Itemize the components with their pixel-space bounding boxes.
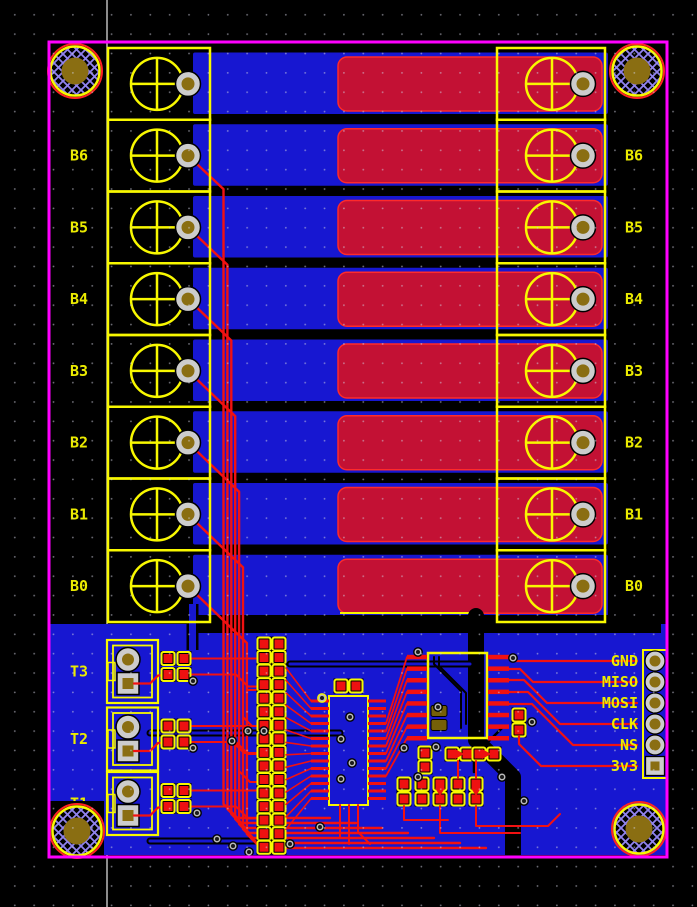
ic-pad bbox=[311, 760, 329, 763]
header-pad[interactable] bbox=[272, 704, 287, 719]
pad-copper bbox=[400, 780, 409, 789]
pad-copper bbox=[164, 654, 173, 663]
via-hole bbox=[350, 761, 354, 765]
header-pad[interactable] bbox=[272, 826, 287, 841]
pad-copper bbox=[472, 780, 481, 789]
hole-drill bbox=[626, 816, 653, 843]
pad-copper bbox=[275, 707, 284, 716]
pad-copper bbox=[180, 722, 189, 731]
resistor-pad[interactable] bbox=[161, 719, 176, 734]
pad-copper bbox=[164, 722, 173, 731]
pad-drill bbox=[123, 746, 134, 757]
pad-copper bbox=[275, 789, 284, 798]
chip-pad bbox=[488, 655, 509, 660]
capacitor-pad[interactable] bbox=[512, 708, 527, 723]
ic-pad bbox=[368, 782, 386, 785]
via-hole bbox=[320, 696, 324, 700]
channel-label-left-b6: B6 bbox=[70, 147, 88, 165]
spi-label-miso: MISO bbox=[602, 673, 638, 691]
chip-pad bbox=[488, 690, 509, 695]
header-pad[interactable] bbox=[272, 745, 287, 760]
mounting-hole-top-left[interactable] bbox=[48, 44, 102, 98]
ic-pad bbox=[368, 775, 386, 778]
via-hole bbox=[288, 842, 292, 846]
via[interactable] bbox=[434, 703, 442, 711]
header-pad[interactable] bbox=[272, 718, 287, 733]
chip-pad bbox=[407, 724, 427, 729]
pad-copper bbox=[260, 802, 269, 811]
pour-gap-strip bbox=[187, 615, 661, 633]
header-pad[interactable] bbox=[272, 786, 287, 801]
via[interactable] bbox=[213, 835, 221, 843]
ic-pad bbox=[311, 775, 329, 778]
chip-pad bbox=[407, 701, 427, 706]
chip-pad bbox=[407, 678, 427, 683]
pad-drill bbox=[577, 77, 590, 90]
pad-copper bbox=[180, 738, 189, 747]
resistor-pad[interactable] bbox=[177, 651, 192, 666]
via[interactable] bbox=[244, 727, 252, 735]
chip-pad bbox=[488, 678, 509, 683]
pad-drill bbox=[577, 221, 590, 234]
smd-pad[interactable] bbox=[415, 792, 430, 807]
via[interactable] bbox=[400, 744, 408, 752]
channel-label-left-b2: B2 bbox=[70, 434, 88, 452]
tented-pad bbox=[431, 720, 447, 731]
header-pad[interactable] bbox=[272, 731, 287, 746]
resistor-pad[interactable] bbox=[177, 799, 192, 814]
chip-pad bbox=[488, 666, 509, 671]
pin-drill bbox=[650, 719, 661, 730]
pad-copper bbox=[454, 780, 463, 789]
channel-label-right-b5: B5 bbox=[625, 218, 643, 236]
pad-copper bbox=[164, 670, 173, 679]
header-pad[interactable] bbox=[272, 691, 287, 706]
pad-drill bbox=[123, 678, 134, 689]
header-pad[interactable] bbox=[272, 799, 287, 814]
via[interactable] bbox=[286, 840, 294, 848]
bottom-trace-stub bbox=[189, 604, 196, 650]
header-pad[interactable] bbox=[272, 813, 287, 828]
pad-drill bbox=[577, 364, 590, 377]
pad-drill bbox=[577, 436, 590, 449]
pad-copper bbox=[260, 667, 269, 676]
pin-drill bbox=[650, 740, 661, 751]
ic-pad bbox=[311, 737, 329, 740]
ic-pad bbox=[368, 737, 386, 740]
smd-pad[interactable] bbox=[418, 760, 433, 775]
pad-copper bbox=[180, 670, 189, 679]
ic-pad bbox=[368, 745, 386, 748]
pad-copper bbox=[275, 694, 284, 703]
via-hole bbox=[402, 746, 406, 750]
spi-label-ns: NS bbox=[620, 736, 638, 754]
header-pad[interactable] bbox=[257, 691, 272, 706]
via[interactable] bbox=[337, 775, 345, 783]
resistor-pad[interactable] bbox=[161, 735, 176, 750]
via-hole bbox=[339, 737, 343, 741]
pad-copper bbox=[275, 829, 284, 838]
via-hole bbox=[339, 777, 343, 781]
pad-drill bbox=[182, 580, 195, 593]
via-hole bbox=[230, 739, 234, 743]
via-hole bbox=[348, 715, 352, 719]
channel-label-left-b5: B5 bbox=[70, 218, 88, 236]
via[interactable] bbox=[245, 848, 253, 856]
ic-pad bbox=[368, 715, 386, 718]
resistor-pad[interactable] bbox=[161, 667, 176, 682]
ic-pad bbox=[311, 707, 329, 710]
ic-pad bbox=[311, 790, 329, 793]
pad-copper bbox=[515, 726, 524, 735]
spi-label-mosi: MOSI bbox=[602, 694, 638, 712]
ic-pad bbox=[368, 797, 386, 800]
resistor-pad[interactable] bbox=[161, 799, 176, 814]
via[interactable] bbox=[414, 773, 422, 781]
smd-pad[interactable] bbox=[451, 792, 466, 807]
mounting-hole-bottom-left[interactable] bbox=[50, 804, 104, 858]
via[interactable] bbox=[520, 797, 528, 805]
pad-copper bbox=[180, 786, 189, 795]
pad-drill bbox=[182, 221, 195, 234]
mounting-hole-bottom-right[interactable] bbox=[612, 802, 666, 856]
pad-copper bbox=[275, 680, 284, 689]
ic-pad bbox=[368, 700, 386, 703]
header-pad[interactable] bbox=[257, 637, 272, 652]
via[interactable] bbox=[228, 737, 236, 745]
via-hole bbox=[522, 799, 526, 803]
via-hole bbox=[511, 656, 515, 660]
pad-copper bbox=[275, 816, 284, 825]
header-pad[interactable] bbox=[272, 677, 287, 692]
header-pad[interactable] bbox=[272, 650, 287, 665]
resistor-pad[interactable] bbox=[161, 783, 176, 798]
via-hole bbox=[247, 850, 251, 854]
via-hole bbox=[500, 775, 504, 779]
chip-pad bbox=[407, 736, 427, 741]
via-hole bbox=[416, 775, 420, 779]
channel-label-left-b3: B3 bbox=[70, 362, 88, 380]
pad-copper bbox=[275, 843, 284, 852]
via[interactable] bbox=[509, 654, 517, 662]
pad-drill bbox=[577, 293, 590, 306]
pad-copper bbox=[180, 802, 189, 811]
channel-label-right-b6: B6 bbox=[625, 147, 643, 165]
pad-copper bbox=[260, 694, 269, 703]
ic-pad bbox=[311, 752, 329, 755]
header-pad[interactable] bbox=[257, 840, 272, 855]
pad-drill bbox=[182, 293, 195, 306]
channel-label-right-b1: B1 bbox=[625, 505, 643, 523]
spi-label-clk: CLK bbox=[611, 715, 638, 733]
header-pad[interactable] bbox=[257, 813, 272, 828]
channel-label-right-b2: B2 bbox=[625, 434, 643, 452]
resistor-pad[interactable] bbox=[177, 719, 192, 734]
via-hole bbox=[434, 745, 438, 749]
hole-drill bbox=[62, 58, 89, 85]
via-hole bbox=[191, 679, 195, 683]
header-pad[interactable] bbox=[257, 704, 272, 719]
pad-drill bbox=[122, 786, 134, 798]
via[interactable] bbox=[189, 744, 197, 752]
pad-copper bbox=[337, 682, 346, 691]
via[interactable] bbox=[189, 677, 197, 685]
pad-copper bbox=[260, 761, 269, 770]
chip-pad bbox=[488, 736, 509, 741]
chip-pad bbox=[488, 713, 509, 718]
ic-pad bbox=[368, 707, 386, 710]
chip-pad bbox=[407, 666, 427, 671]
resistor-pad[interactable] bbox=[161, 651, 176, 666]
chip-pad bbox=[488, 701, 509, 706]
header-pad[interactable] bbox=[257, 650, 272, 665]
smd-pad[interactable] bbox=[397, 792, 412, 807]
channel-label-left-b1: B1 bbox=[70, 505, 88, 523]
pad-copper bbox=[418, 795, 427, 804]
via-hole bbox=[195, 811, 199, 815]
ic-pad bbox=[311, 782, 329, 785]
header-pad[interactable] bbox=[272, 758, 287, 773]
pcb-board-svg: B6B6B5B5B4B4B3B3B2B2B1B1B0B0T3T2T1GNDMIS… bbox=[0, 0, 697, 907]
channel-label-left-b4: B4 bbox=[70, 290, 88, 308]
pin-drill bbox=[650, 677, 661, 688]
via[interactable] bbox=[414, 648, 422, 656]
capacitor-pad[interactable] bbox=[349, 679, 364, 694]
pad-copper bbox=[275, 734, 284, 743]
pad-copper bbox=[436, 780, 445, 789]
channel-label-left-b0: B0 bbox=[70, 577, 88, 595]
header-pad[interactable] bbox=[257, 772, 272, 787]
ic-pad bbox=[311, 745, 329, 748]
via[interactable] bbox=[432, 743, 440, 751]
pad-copper bbox=[454, 795, 463, 804]
pad-copper bbox=[275, 761, 284, 770]
pad-copper bbox=[352, 682, 361, 691]
header-pad[interactable] bbox=[257, 786, 272, 801]
via-hole bbox=[231, 844, 235, 848]
via-hole bbox=[215, 837, 219, 841]
via-hole bbox=[262, 729, 266, 733]
header-pad[interactable] bbox=[272, 772, 287, 787]
via-hole bbox=[318, 825, 322, 829]
header-pad[interactable] bbox=[272, 664, 287, 679]
pad-drill bbox=[577, 580, 590, 593]
via-hole bbox=[416, 650, 420, 654]
pad-copper bbox=[421, 763, 430, 772]
ic-pad bbox=[311, 730, 329, 733]
ic-pad bbox=[368, 760, 386, 763]
chip-pad bbox=[407, 713, 427, 718]
pad-copper bbox=[275, 653, 284, 662]
ic-pad bbox=[368, 790, 386, 793]
ic-pad bbox=[311, 767, 329, 770]
via-hole bbox=[530, 720, 534, 724]
pad-copper bbox=[421, 749, 430, 758]
via[interactable] bbox=[193, 809, 201, 817]
ic-pad bbox=[311, 722, 329, 725]
via[interactable] bbox=[348, 759, 356, 767]
pin-drill bbox=[651, 762, 660, 771]
via[interactable] bbox=[346, 713, 354, 721]
spi-label-3v3: 3v3 bbox=[611, 757, 638, 775]
via[interactable] bbox=[498, 773, 506, 781]
terminal-label-t3: T3 bbox=[70, 663, 88, 681]
ic-pad bbox=[368, 730, 386, 733]
header-pad[interactable] bbox=[257, 826, 272, 841]
pad-copper bbox=[260, 789, 269, 798]
chip-pad bbox=[407, 690, 427, 695]
pad-copper bbox=[260, 775, 269, 784]
channel-label-right-b3: B3 bbox=[625, 362, 643, 380]
channel-label-right-b0: B0 bbox=[625, 577, 643, 595]
pad-copper bbox=[400, 795, 409, 804]
header-pad[interactable] bbox=[257, 664, 272, 679]
ic-pad bbox=[368, 767, 386, 770]
pad-copper bbox=[164, 786, 173, 795]
via-hole bbox=[191, 746, 195, 750]
header-pad[interactable] bbox=[257, 677, 272, 692]
pad-drill bbox=[577, 508, 590, 521]
ic-pad bbox=[368, 722, 386, 725]
pad-drill bbox=[122, 654, 134, 666]
pad-drill bbox=[122, 721, 134, 733]
pad-copper bbox=[275, 640, 284, 649]
pad-copper bbox=[275, 775, 284, 784]
pad-copper bbox=[260, 816, 269, 825]
pad-copper bbox=[260, 707, 269, 716]
pad-copper bbox=[260, 640, 269, 649]
pad-copper bbox=[164, 738, 173, 747]
via-hole bbox=[436, 705, 440, 709]
pad-drill bbox=[182, 149, 195, 162]
header-pad[interactable] bbox=[257, 758, 272, 773]
header-pad[interactable] bbox=[257, 799, 272, 814]
pad-drill bbox=[182, 77, 195, 90]
capacitor-pad[interactable] bbox=[334, 679, 349, 694]
via[interactable] bbox=[316, 823, 324, 831]
pad-drill bbox=[123, 810, 134, 821]
pad-copper bbox=[275, 748, 284, 757]
smd-pad[interactable] bbox=[418, 746, 433, 761]
via[interactable] bbox=[528, 718, 536, 726]
pad-drill bbox=[182, 364, 195, 377]
pad-drill bbox=[182, 436, 195, 449]
pad-copper bbox=[180, 654, 189, 663]
chip-pad bbox=[488, 724, 509, 729]
channel-label-right-b4: B4 bbox=[625, 290, 643, 308]
header-pad[interactable] bbox=[257, 745, 272, 760]
via-hole bbox=[246, 729, 250, 733]
ic-pad bbox=[311, 797, 329, 800]
resistor-pad[interactable] bbox=[177, 783, 192, 798]
pad-copper bbox=[260, 653, 269, 662]
pcb-canvas[interactable]: B6B6B5B5B4B4B3B3B2B2B1B1B0B0T3T2T1GNDMIS… bbox=[0, 0, 697, 907]
hole-drill bbox=[64, 818, 91, 845]
pad-copper bbox=[260, 829, 269, 838]
pin-drill bbox=[650, 698, 661, 709]
pad-copper bbox=[260, 843, 269, 852]
pad-copper bbox=[515, 711, 524, 720]
pad-copper bbox=[275, 667, 284, 676]
pad-copper bbox=[275, 802, 284, 811]
pad-copper bbox=[260, 680, 269, 689]
terminal-label-t2: T2 bbox=[70, 730, 88, 748]
pad-drill bbox=[577, 149, 590, 162]
header-pad[interactable] bbox=[272, 840, 287, 855]
smd-pad[interactable] bbox=[397, 777, 412, 792]
via[interactable] bbox=[337, 735, 345, 743]
pad-copper bbox=[260, 748, 269, 757]
via[interactable] bbox=[229, 842, 237, 850]
via[interactable] bbox=[260, 727, 268, 735]
pad-copper bbox=[164, 802, 173, 811]
ic-pad bbox=[311, 715, 329, 718]
spi-label-gnd: GND bbox=[611, 652, 638, 670]
pin-drill bbox=[650, 656, 661, 667]
pad-drill bbox=[182, 508, 195, 521]
ic-pad bbox=[368, 752, 386, 755]
hole-drill bbox=[624, 58, 651, 85]
mounting-hole-top-right[interactable] bbox=[610, 44, 664, 98]
via[interactable] bbox=[318, 694, 326, 702]
pad-copper bbox=[275, 721, 284, 730]
header-pad[interactable] bbox=[272, 637, 287, 652]
